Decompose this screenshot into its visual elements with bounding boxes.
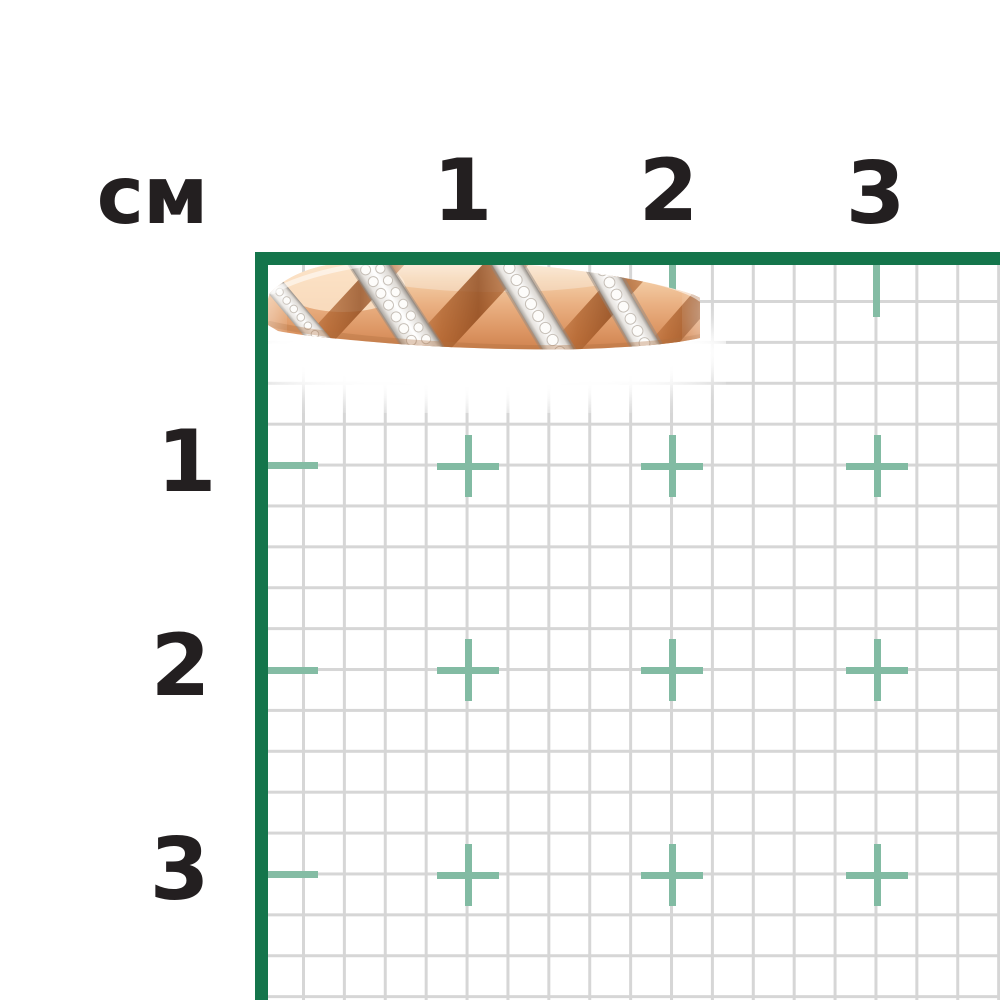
left-edge-cm-dash (268, 667, 318, 674)
top-tick-2: 2 (639, 148, 698, 234)
ruler-frame-top (255, 252, 1000, 265)
cm-cross-mark (641, 844, 703, 906)
cm-cross-mark (846, 435, 908, 497)
left-edge-cm-dash (268, 871, 318, 878)
measurement-grid-stage: см 1 2 3 1 2 3 (0, 0, 1000, 1000)
left-tick-3: 3 (150, 827, 209, 913)
cm-cross-mark (437, 639, 499, 701)
top-tick-1: 1 (433, 148, 492, 234)
top-edge-cm-dash (873, 265, 880, 317)
left-edge-cm-dash (268, 462, 318, 469)
unit-label-cm: см (97, 156, 208, 236)
ruler-frame-left (255, 252, 268, 1000)
cm-cross-mark (846, 844, 908, 906)
cm-cross-mark (437, 844, 499, 906)
cm-cross-mark (846, 639, 908, 701)
cm-cross-mark (437, 435, 499, 497)
cm-cross-mark (641, 639, 703, 701)
top-tick-3: 3 (846, 151, 905, 237)
left-tick-2: 2 (151, 623, 210, 709)
cm-cross-mark (641, 435, 703, 497)
left-tick-1: 1 (157, 419, 216, 505)
